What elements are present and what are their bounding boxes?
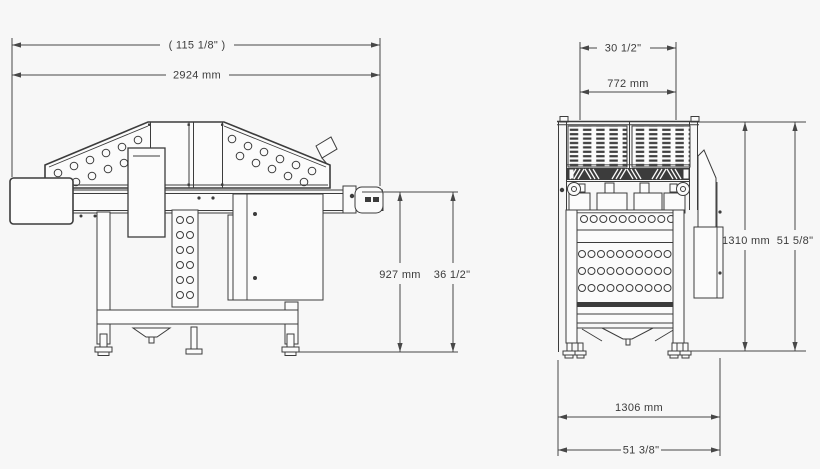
- mechanism: [568, 183, 690, 214]
- discharge-funnel-front: [602, 328, 653, 345]
- extension-lines: [12, 38, 806, 456]
- dim-front-top-mm: 772 mm: [580, 78, 676, 95]
- hatch-band: [567, 168, 690, 182]
- access-door: [233, 194, 323, 300]
- slat-panels: [567, 122, 690, 169]
- dim-side-height-inches: 36 1/2": [434, 192, 471, 352]
- leveling-feet-side: [95, 327, 299, 356]
- dim-front-height-mm-label: 1310 mm: [722, 235, 770, 247]
- dim-side-height-inches-label: 36 1/2": [434, 269, 471, 281]
- dim-front-height-inches: 51 5/8": [777, 122, 814, 351]
- center-panel: [128, 148, 165, 237]
- dim-side-height-mm-label: 927 mm: [379, 269, 421, 281]
- dim-side-overall-mm: 2924 mm: [12, 70, 380, 82]
- side-cabinet: [694, 150, 723, 298]
- dim-front-base-mm: 1306 mm: [558, 402, 720, 420]
- drive-unit: [343, 186, 383, 213]
- drawing-canvas: ( 115 1/8" ) 2924 mm 927 mm 36 1/2": [0, 0, 820, 469]
- perforated-strip: [172, 210, 198, 307]
- dim-front-top-inches-label: 30 1/2": [605, 43, 642, 55]
- dim-front-top-mm-label: 772 mm: [607, 78, 649, 90]
- side-view: [10, 122, 383, 356]
- discharge-funnel-side: [133, 328, 170, 343]
- dim-side-overall-mm-label: 2924 mm: [173, 70, 221, 82]
- control-box: [10, 178, 73, 224]
- dimensions: ( 115 1/8" ) 2924 mm 927 mm 36 1/2": [12, 38, 813, 457]
- dim-side-overall-inches: ( 115 1/8" ): [12, 40, 380, 52]
- dim-side-overall-inches-label: ( 115 1/8" ): [169, 40, 226, 52]
- front-view: [557, 117, 723, 359]
- dim-front-base-inches-label: 51 3/8": [623, 445, 660, 457]
- machine-drawing: ( 115 1/8" ) 2924 mm 927 mm 36 1/2": [0, 0, 820, 469]
- dim-side-height-mm: 927 mm: [379, 192, 421, 352]
- dim-front-height-mm: 1310 mm: [722, 122, 770, 351]
- dim-front-height-inches-label: 51 5/8": [777, 235, 814, 247]
- front-body: [577, 210, 680, 341]
- dim-front-base-mm-label: 1306 mm: [615, 402, 663, 414]
- dim-front-top-inches: 30 1/2": [580, 43, 676, 55]
- dim-front-base-inches: 51 3/8": [558, 445, 720, 457]
